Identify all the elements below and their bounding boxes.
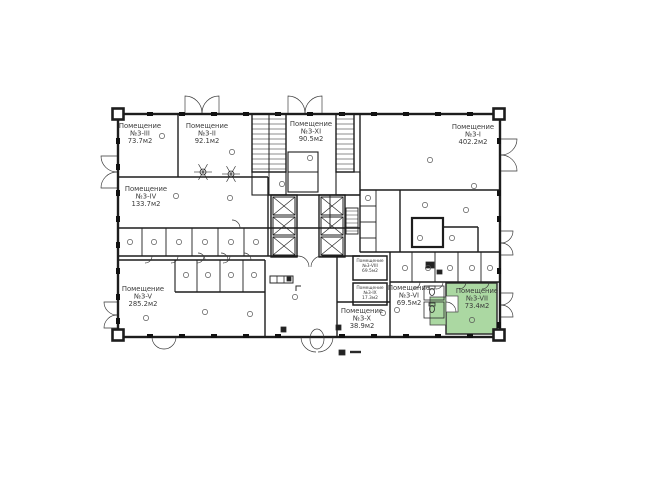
sprinkler-icon — [127, 239, 132, 244]
sprinkler-icon — [202, 309, 207, 314]
sprinkler-icon — [292, 294, 297, 299]
svg-text:73.7м2: 73.7м2 — [128, 137, 153, 145]
entrance-door-bottom-left — [152, 337, 176, 349]
sprinkler-icon — [229, 149, 234, 154]
sprinkler-icon — [447, 265, 452, 270]
plant-symbols — [194, 164, 240, 182]
floor-plan-svg: Помещение №3-III 73.7м2 Помещение №3-II … — [0, 0, 653, 489]
svg-text:285.2м2: 285.2м2 — [129, 300, 158, 308]
stairwell-secondary — [288, 114, 360, 234]
sprinkler-icon — [202, 239, 207, 244]
sprinkler-icon — [247, 311, 252, 316]
entrance-door-top-center — [288, 96, 322, 113]
room-label-3-xi: Помещение №3-XI 90.5м2 — [290, 120, 332, 143]
entrance-door-left-upper — [101, 156, 117, 188]
sprinkler-icon — [151, 239, 156, 244]
svg-text:133.7м2: 133.7м2 — [132, 200, 161, 208]
room-label-3-iii: Помещение №3-III 73.7м2 — [119, 122, 161, 145]
sprinkler-icon — [227, 195, 232, 200]
sprinkler-icon — [463, 207, 468, 212]
main-entrance-revolving-door — [301, 329, 333, 352]
sprinkler-icon — [487, 265, 492, 270]
svg-text:92.1м2: 92.1м2 — [195, 137, 220, 145]
room-label-3-ix: Помещение №3-IX 17.3м2 — [356, 285, 384, 301]
room-label-3-viii: Помещение №3-VIII 69.5м2 — [356, 258, 384, 274]
corner-column-top-left — [113, 109, 124, 120]
entrance-door-right-middle — [501, 231, 513, 255]
entrance-door-left-lower — [104, 302, 117, 328]
room-label-3-v: Помещение №3-V 285.2м2 — [122, 285, 164, 308]
sprinkler-icon — [183, 272, 188, 277]
room-label-3-ii: Помещение №3-II 92.1м2 — [186, 122, 228, 145]
sprinkler-icon — [279, 181, 284, 186]
room-partitions — [142, 190, 481, 292]
corner-column-bottom-left — [113, 330, 124, 341]
svg-text:38.9м2: 38.9м2 — [350, 322, 375, 330]
room-label-3-x: Помещение №3-X 38.9м2 — [341, 307, 383, 330]
elevator-bank-right — [319, 195, 345, 257]
corner-column-top-right — [494, 109, 505, 120]
room-label-3-i: Помещение №3-I 402.2м2 — [452, 123, 494, 146]
sprinkler-icon — [422, 202, 427, 207]
sprinkler-icon — [307, 155, 312, 160]
sprinkler-icon — [173, 193, 178, 198]
sprinkler-icon — [159, 133, 164, 138]
sprinkler-icon — [205, 272, 210, 277]
sprinkler-icon — [143, 315, 148, 320]
sprinkler-icon — [251, 272, 256, 277]
sprinkler-icon — [228, 239, 233, 244]
sprinkler-icon — [427, 157, 432, 162]
entrance-door-top-left — [185, 96, 219, 113]
sprinkler-icon — [417, 235, 422, 240]
svg-text:402.2м2: 402.2м2 — [459, 138, 488, 146]
sprinkler-icon — [471, 183, 476, 188]
entrance-door-right-lower — [501, 293, 513, 317]
svg-text:90.5м2: 90.5м2 — [299, 135, 324, 143]
sprinkler-icon — [228, 272, 233, 277]
svg-text:69.5м2: 69.5м2 — [397, 299, 422, 307]
corner-column-bottom-right — [494, 330, 505, 341]
sprinkler-icon — [469, 265, 474, 270]
utility-thick-room — [412, 218, 443, 247]
svg-text:73.4м2: 73.4м2 — [465, 302, 490, 310]
sprinkler-icon — [394, 307, 399, 312]
elevator-bank-left — [271, 195, 297, 257]
entrance-door-right-upper — [501, 139, 517, 171]
stairwell-main — [252, 114, 286, 195]
sprinkler-icon — [253, 239, 258, 244]
room-label-3-iv: Помещение №3-IV 133.7м2 — [125, 185, 167, 208]
sprinkler-icon — [402, 265, 407, 270]
sprinkler-icon — [176, 239, 181, 244]
floor-plan-page: Помещение №3-III 73.7м2 Помещение №3-II … — [0, 0, 653, 489]
sprinkler-icon — [449, 235, 454, 240]
svg-text:17.3м2: 17.3м2 — [362, 295, 378, 301]
svg-text:69.5м2: 69.5м2 — [362, 268, 378, 274]
sprinkler-icon — [365, 195, 370, 200]
